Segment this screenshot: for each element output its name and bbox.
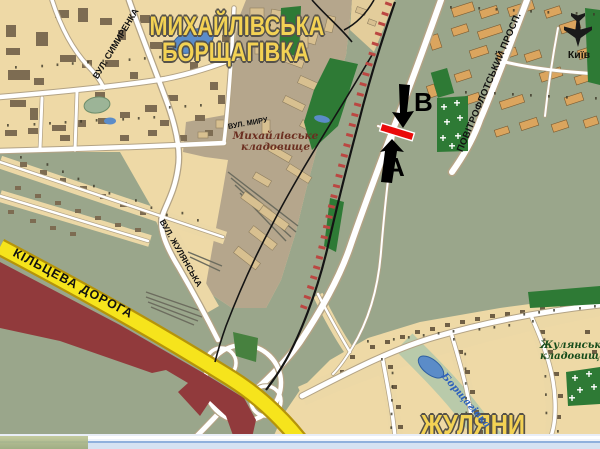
route-marker-label-a: А [386,152,405,183]
cemetery-label-line2: кладовище [540,352,600,363]
settlement-label-line1: МИХАЙЛІВСЬКА [150,13,322,39]
settlement-label-mykhailivska-borshchahivka: МИХАЙЛІВСЬКА БОРЩАГІВКА [150,13,322,65]
map-canvas[interactable] [0,0,600,449]
scrollbar-thumb[interactable] [0,436,88,449]
route-marker-label-b: В [414,87,433,118]
map-viewport: МИХАЙЛІВСЬКА БОРЩАГІВКА ЖУЛЯНИ Київ ПОВІ… [0,0,600,449]
scrollbar-track[interactable] [0,443,600,449]
horizontal-scrollbar[interactable] [0,434,600,449]
airport-label-kyiv: Київ [556,49,600,61]
scrollbar-edge [0,434,600,436]
cemetery-label-mykhailivske: Михайлівське кладовище [213,131,338,153]
cemetery-label-zhulianske: Жулянське кладовище [540,341,600,362]
cemetery-label-line2: кладовище [213,142,338,153]
cemetery-label-line1: Жулянське [540,341,600,352]
settlement-label-line2: БОРЩАГІВКА [150,39,322,65]
